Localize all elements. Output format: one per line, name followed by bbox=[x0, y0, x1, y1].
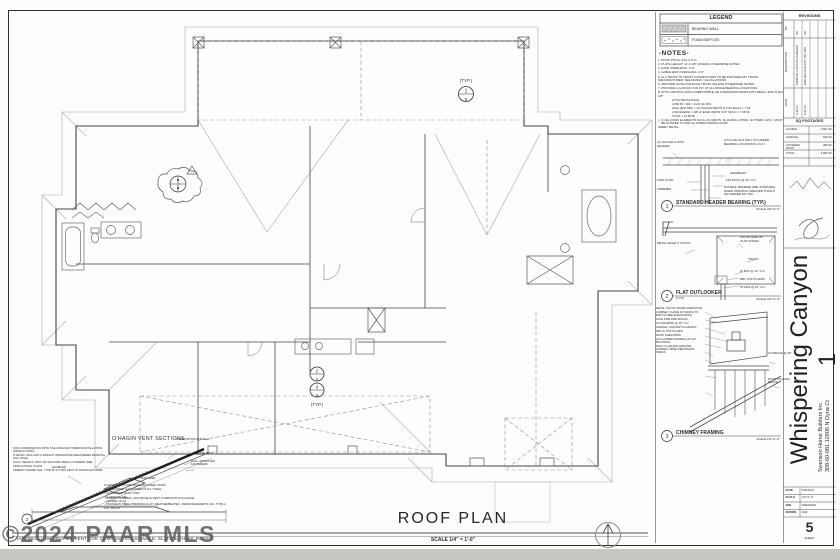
d1-label: HDR/BEAM bbox=[730, 172, 746, 176]
revision-entry-date: 4-18-24 bbox=[796, 90, 799, 115]
svg-text:3: 3 bbox=[316, 385, 319, 390]
ohagin-spec-line: - STAINLESS STEEL PREMIUM ALLOY WEATHERB… bbox=[104, 503, 230, 510]
detail-1-title: STANDARD HEADER BEARING (TYP.) bbox=[676, 200, 766, 206]
job-value: SWENSON bbox=[802, 504, 834, 507]
drawn-value: JAW bbox=[802, 511, 834, 514]
revisions-title: REVISIONS bbox=[783, 13, 836, 18]
revision-entry-by: JW bbox=[804, 21, 807, 35]
ohagin-label-vent-area: VENT AREA bbox=[140, 477, 156, 480]
d1-label: (2) 16d NAILS INTO HEADER bbox=[657, 141, 695, 148]
mls-watermark: ©2024 PAAR MLS bbox=[2, 521, 216, 548]
d1-label: KING STUD bbox=[657, 179, 673, 183]
roof-plan-drawing: (TYP.) 1 5 2 5 3 5 (TYP.) 2 bbox=[8, 12, 655, 548]
d2-label: STUDS @ 16" O.C. bbox=[740, 286, 766, 290]
ohagin-label-deck: ROOF DECK bbox=[197, 452, 214, 455]
sq-row-label: TOTAL bbox=[786, 152, 808, 155]
d1-label: TRIMMER bbox=[657, 188, 671, 192]
ohagin-label-shingle: COMPOSITION SHINGLE bbox=[176, 438, 210, 441]
sq-row-value: 946 SF bbox=[808, 136, 832, 139]
detail-2-scale: SCALE 3/4"=1'-0" bbox=[734, 298, 780, 302]
client-info: Swenson Home Builders Inc. 308-60-081 12… bbox=[818, 262, 831, 472]
flag-triangle bbox=[187, 166, 197, 174]
revisions-col-date: DATE bbox=[785, 89, 792, 116]
d2-label: METAL EDGE 2" RS FIN bbox=[657, 242, 693, 246]
detail-2-subtitle: (TYP.) bbox=[676, 297, 684, 301]
d2-label: 2x BLK @ 12" O.C. bbox=[740, 270, 782, 274]
typ-label-top: (TYP.) bbox=[460, 78, 473, 83]
sheet-title: ROOF PLAN bbox=[393, 510, 513, 528]
legend-item-foam-baffles: FOAM BAFFLES bbox=[692, 38, 719, 42]
sq-row-label: COVERED PATIO bbox=[786, 144, 808, 151]
sq-row-value: 389 SF bbox=[808, 144, 832, 147]
door-swings bbox=[248, 208, 425, 356]
scale-label: SCALE bbox=[786, 496, 800, 499]
revision-entry-by: JW bbox=[796, 21, 799, 35]
revision-entry-desc: WINDOW / LAYOUT CHANGES bbox=[796, 40, 799, 85]
d2-label: 2x6 ON SIDE OF OUTLOOKER bbox=[740, 236, 782, 243]
svg-text:1: 1 bbox=[465, 89, 468, 95]
scale-value: 1/4"=1'-0" bbox=[802, 496, 834, 499]
revisions-col-description: DESCRIPTION bbox=[785, 38, 792, 86]
svg-text:1: 1 bbox=[666, 204, 669, 210]
revision-entry-date: 8-26-24 bbox=[804, 90, 807, 115]
date-value: 9/26/2024 bbox=[802, 489, 834, 492]
roof-overhang-lines bbox=[42, 27, 652, 522]
typ-label-bottom: (TYP.) bbox=[311, 402, 324, 407]
ohagin-label-flat-vent: O'HAGIN TAPERED, LOW-PROFILE VENT (COMPO… bbox=[100, 497, 200, 500]
svg-text:2: 2 bbox=[666, 294, 669, 300]
legend-item-bearing-wall: BEARING WALL bbox=[692, 27, 719, 31]
exterior-walls bbox=[56, 41, 638, 466]
sheet-number-label: SHEET bbox=[783, 536, 836, 540]
legend-title: LEGEND bbox=[660, 15, 782, 22]
project-title: Whispering Canyon 1 bbox=[786, 247, 816, 472]
d1-label: GT12 OR H2.5 ONLY IN GIRDER BEARING LOCA… bbox=[724, 139, 780, 146]
job-label: JOB bbox=[786, 504, 800, 507]
girder-truss-boxes bbox=[193, 37, 573, 466]
sq-row-label: GARAGE bbox=[786, 136, 808, 139]
scan-edge-band bbox=[0, 549, 840, 560]
drawing-sheet: (TYP.) 1 5 2 5 3 5 (TYP.) 2 bbox=[0, 0, 840, 560]
revision-entry-desc: ENG REV PER CITY OR HOA bbox=[804, 40, 807, 85]
sheet-scale: SCALE 1/4" = 1'-0" bbox=[393, 537, 513, 543]
detail-callouts: (TYP.) 1 5 2 5 3 5 (TYP.) bbox=[310, 78, 474, 407]
designer-logo bbox=[790, 178, 831, 240]
ohagin-label-fasteners: GALV. APPROVED FASTENERS bbox=[191, 460, 231, 467]
revision-cloud-and-vent-symbol bbox=[158, 166, 202, 203]
notes-list: 1. ROOF PITCH: 5/12 U.N.O. 2. PLATE HEIG… bbox=[658, 59, 783, 130]
detail-1-scale: SCALE 3/4"=1'-0" bbox=[734, 208, 780, 212]
svg-text:2: 2 bbox=[316, 369, 319, 374]
chimney-box bbox=[527, 256, 573, 284]
sheet-number: 5 bbox=[783, 519, 836, 535]
drawn-label: DRAWN bbox=[786, 511, 800, 514]
detail-3-scale: SCALE 1/2"=1'-0" bbox=[734, 438, 780, 442]
sheet-metal-line: SHEET METAL: bbox=[658, 126, 783, 130]
ridge-dashed-lines bbox=[140, 41, 572, 470]
date-label: DATE bbox=[786, 489, 800, 492]
closet-zigzag bbox=[72, 203, 136, 218]
sq-footages-title: SQ FOOTAGES bbox=[783, 119, 836, 123]
svg-text:3: 3 bbox=[666, 434, 669, 440]
revisions-col-by: BY bbox=[785, 20, 792, 36]
d3-label-stack: METAL CAP W/ SPARK ARRESTOR CHIMNEY CHAS… bbox=[656, 307, 702, 355]
detail-3-title: CHIMNEY FRAMING bbox=[676, 430, 724, 436]
sq-row-label: LIVABLE bbox=[786, 128, 808, 131]
sq-row-value: 2,561 SF bbox=[808, 128, 832, 131]
note-item-9: 9. ALL ROOF ELEMENTS SUCH AS VENTS, FLAS… bbox=[661, 119, 783, 126]
d1-label: 16d NAILS @ 12" O.C. bbox=[726, 179, 778, 183]
client-address: 308-60-081 12905 N Dyna Ct bbox=[825, 262, 832, 472]
notes-title: -NOTES- bbox=[659, 50, 689, 57]
d2-label: TRUSS bbox=[748, 258, 758, 262]
island-box bbox=[368, 308, 385, 332]
d3-label: GALV. FLASHING AROUND CHIMNEY BASE PER M… bbox=[656, 345, 702, 355]
ohagin-title: O'HAGIN VENT SECTIONS bbox=[112, 436, 185, 442]
d2-label: DBL TOP PLATES bbox=[740, 278, 765, 282]
sq-row-value: 3,896 SF bbox=[808, 152, 832, 155]
ohagin-label-chamfer: CHAMFER bbox=[52, 466, 66, 469]
d1-label: DOUBLE TRIMMER (DBL SUPPLIED) WHEN OPENI… bbox=[724, 186, 780, 197]
